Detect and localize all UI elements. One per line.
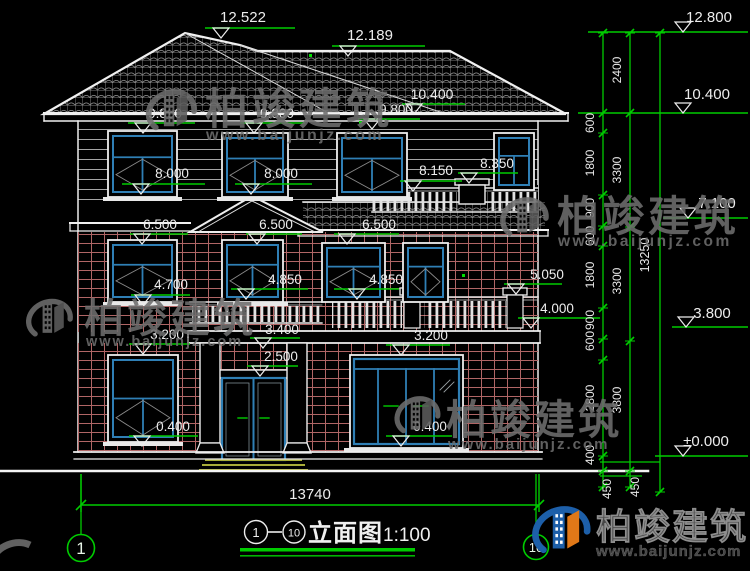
elevation-marker-peak-left: 12.522 [205, 9, 295, 38]
title-axis-end: 10 [288, 528, 300, 540]
window-sill [332, 197, 412, 201]
elevation-drawing-canvas: 12.52212.18910.4009.8009.8009.8008.0008.… [0, 0, 750, 571]
dimension-label: 1800 [583, 261, 597, 288]
brand-logo-site: www.baijunjz.com [595, 543, 741, 560]
elevation-label: 2.500 [264, 349, 298, 364]
elevation-label: 6.500 [362, 217, 396, 232]
elevation-label: 4.850 [369, 272, 403, 287]
elevation-label: 0.400 [156, 419, 190, 434]
bottom-dimension: 13740 [76, 474, 544, 512]
axis-bubble-1: 1 [68, 474, 95, 562]
chimney [455, 179, 489, 204]
drawing-scale: 1:100 [383, 525, 431, 546]
brand-logo: 柏竣建筑 www.baijunjz.com [535, 506, 748, 560]
elevation-label: 8.000 [264, 166, 298, 181]
title-axis-start: 1 [252, 525, 259, 540]
dimension-label: 3300 [610, 156, 624, 183]
dim-13740: 13740 [289, 486, 331, 503]
elevation-label: 4.850 [268, 272, 302, 287]
elevation-label: ±0.000 [683, 433, 729, 450]
elevation-marker-r-12800: 12.800 [588, 9, 748, 32]
entry-column-left [196, 343, 224, 453]
dimension-label: 450 [628, 477, 642, 497]
axis-bubble-1-label: 1 [76, 539, 85, 558]
dimension-label: 2400 [610, 56, 624, 83]
watermark-site: www.baijunjz.com [85, 334, 243, 350]
brand-logo-text: 柏竣建筑 [596, 506, 748, 547]
dimension-label: 3300 [610, 267, 624, 294]
door-lintel [212, 370, 295, 378]
elevation-label: 8.000 [155, 166, 189, 181]
dimension-label: 600 [583, 113, 597, 133]
elevation-label: 8.350 [480, 156, 514, 171]
elevation-label: 3.200 [414, 328, 448, 343]
entry-door [222, 378, 285, 460]
title-block: 1 10 立面图 1:100 [240, 519, 431, 557]
watermark-corner-fragment [0, 543, 30, 560]
elevation-label: 10.400 [684, 86, 730, 103]
elevation-label: 10.400 [411, 86, 454, 102]
elevation-label: 8.150 [419, 163, 453, 178]
elevation-label: 3.400 [265, 322, 299, 337]
elevation-label: 12.800 [686, 9, 732, 26]
elevation-label: 5.050 [530, 267, 564, 282]
window [403, 243, 448, 302]
elevation-marker-r-0000: ±0.000 [655, 433, 748, 456]
dimension-label: 1800 [583, 149, 597, 176]
elevation-label: 3.800 [693, 305, 731, 322]
window-sill [217, 197, 293, 201]
elevation-label: 6.500 [259, 217, 293, 232]
watermark-left: 柏竣建筑 www.baijunjz.com [29, 297, 256, 350]
elevation-marker-r-3800: 3.800 [672, 305, 748, 327]
drawing-title: 立面图 [308, 519, 383, 547]
window-sill [103, 197, 182, 201]
elevation-label: 12.522 [220, 9, 266, 26]
elevation-label: 4.000 [540, 301, 574, 316]
dimension-label: 450 [600, 479, 614, 499]
watermark-site: www.baijunjz.com [557, 233, 732, 250]
elevation-label: 12.189 [347, 27, 393, 44]
dimension-label: 600 [583, 331, 597, 351]
dimension-label: 900 [583, 310, 597, 330]
watermark-site: www.baijunjz.com [205, 127, 384, 144]
elevation-label: 4.700 [154, 277, 188, 292]
elevation-label: 6.500 [143, 217, 177, 232]
watermark-site: www.baijunjz.com [447, 436, 609, 453]
